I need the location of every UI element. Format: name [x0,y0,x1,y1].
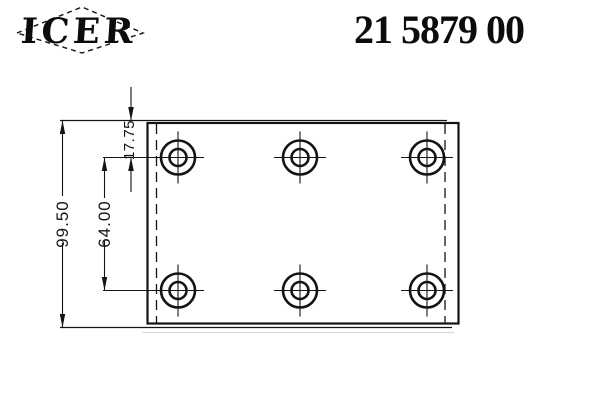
arrowhead-up-icon [60,121,65,135]
arrowhead-down-icon [60,314,65,328]
dimension-label-row-spacing: 64.00 [95,200,114,248]
dimension-top-to-first-row: 17.75 [121,87,138,192]
dimension-label-top-to-first-row: 17.75 [121,120,138,160]
drawing-sheet: ICER 21 5879 00 99.50 64.0 [0,0,600,400]
arrowhead-up-icon [102,158,107,172]
rivet-hole [274,265,326,317]
dimension-label-total-height: 99.50 [53,200,72,248]
dimension-total-height: 99.50 [53,121,72,328]
dimension-row-spacing: 64.00 [95,158,114,291]
arrowhead-down-icon [102,277,107,291]
rivet-holes-layer [152,132,453,317]
rivet-hole [274,132,326,184]
arrowhead-down-icon [128,107,134,121]
technical-drawing: 99.50 64.00 17.75 [0,0,600,400]
